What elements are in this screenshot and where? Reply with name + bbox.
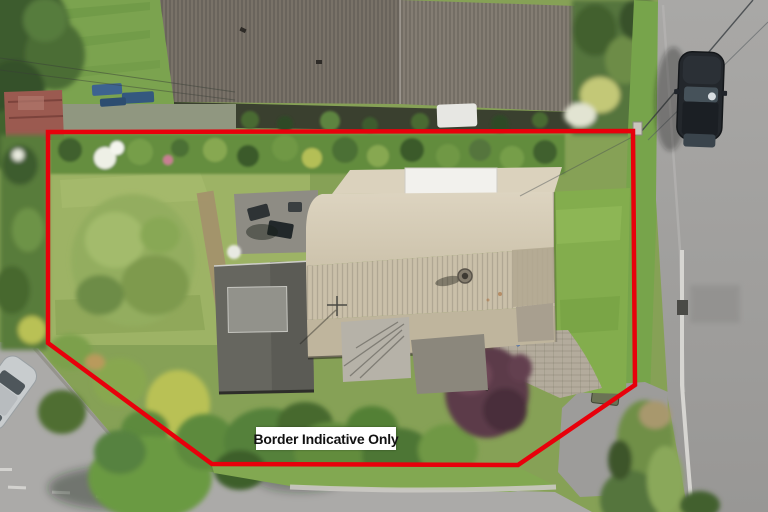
left-outside-garden (0, 135, 48, 350)
white-vehicle (437, 103, 478, 127)
patio (227, 190, 318, 259)
parked-car-black (653, 46, 729, 152)
border-indicative-label: Border Indicative Only (256, 427, 396, 450)
manhole (677, 300, 688, 315)
roof-skylight-panel (405, 168, 497, 195)
garage-flat-roof (214, 261, 314, 394)
aerial-photo: Border Indicative Only (0, 0, 768, 512)
large-tree (71, 194, 195, 326)
neighbor-house-roof (160, 0, 576, 112)
